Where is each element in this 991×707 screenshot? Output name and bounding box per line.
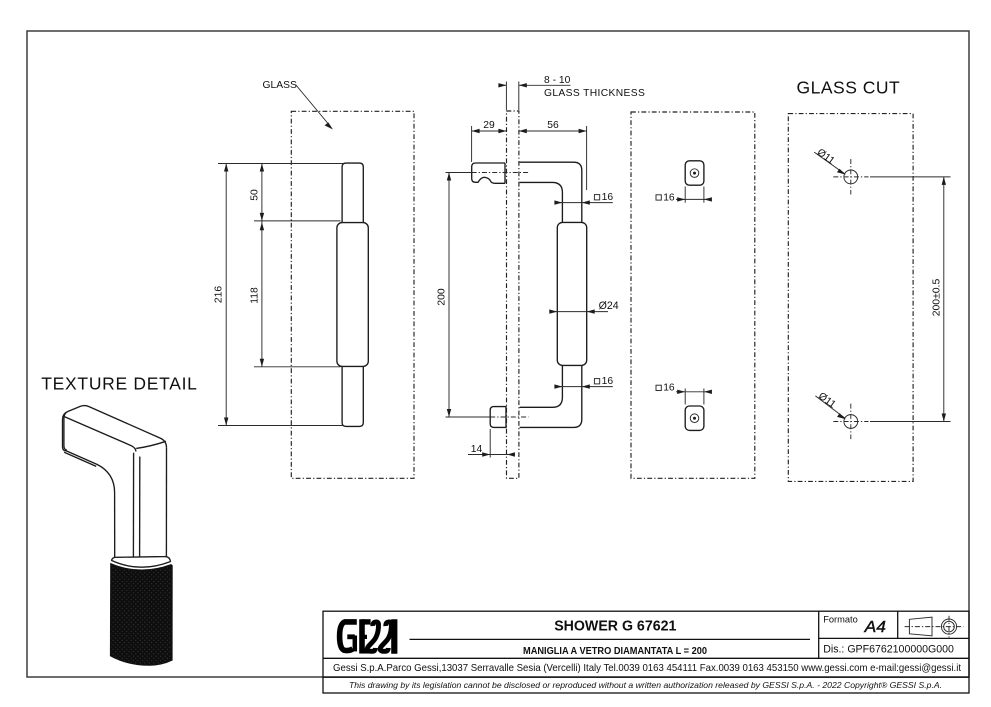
svg-text:118: 118 [249,287,260,304]
svg-text:GLASS CUT: GLASS CUT [797,77,901,97]
svg-text:16: 16 [602,376,614,387]
svg-text:This drawing by its legislatio: This drawing by its legislation cannot b… [349,680,942,690]
svg-text:Formato: Formato [823,615,858,625]
svg-text:16: 16 [663,192,675,203]
svg-text:14: 14 [471,444,483,455]
svg-text:16: 16 [663,383,675,394]
svg-text:GLASS THICKNESS: GLASS THICKNESS [544,88,645,99]
svg-text:SHOWER G 67621: SHOWER G 67621 [554,618,677,635]
svg-text:Gessi S.p.A.Parco Gessi,13037: Gessi S.p.A.Parco Gessi,13037 Serravalle… [333,663,961,674]
svg-text:216: 216 [214,286,225,303]
svg-text:A4: A4 [864,619,887,636]
svg-text:MANIGLIA A VETRO DIAMANTATA L: MANIGLIA A VETRO DIAMANTATA L = 200 [523,646,707,657]
svg-text:200: 200 [436,288,447,305]
svg-text:8 - 10: 8 - 10 [544,75,571,86]
svg-text:Dis.: GPF6762100000G000: Dis.: GPF6762100000G000 [823,644,954,656]
svg-text:Ø24: Ø24 [599,300,619,312]
svg-text:56: 56 [547,120,559,131]
svg-text:29: 29 [483,120,495,131]
svg-text:200±0.5: 200±0.5 [932,279,943,317]
svg-text:50: 50 [249,189,260,201]
svg-text:16: 16 [602,192,614,203]
svg-text:GLASS: GLASS [263,80,297,91]
svg-text:TEXTURE DETAIL: TEXTURE DETAIL [41,373,197,393]
